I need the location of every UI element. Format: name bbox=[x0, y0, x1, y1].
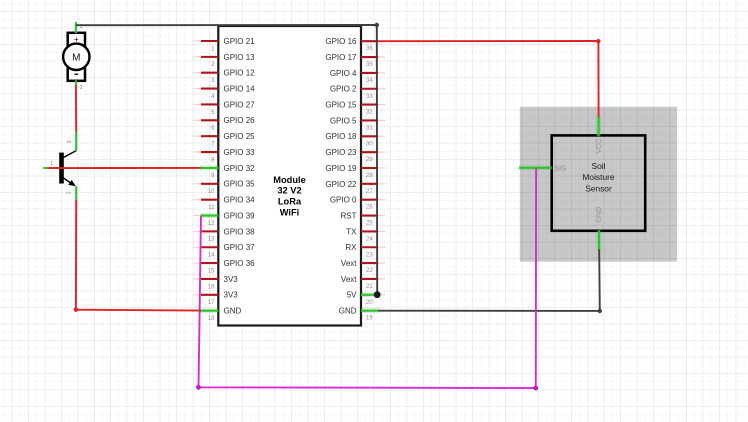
svg-text:1: 1 bbox=[50, 161, 53, 167]
svg-text:GPIO 21: GPIO 21 bbox=[224, 37, 256, 46]
svg-text:23: 23 bbox=[366, 252, 373, 258]
svg-text:GPIO 19: GPIO 19 bbox=[325, 164, 357, 173]
svg-text:GPIO 26: GPIO 26 bbox=[224, 116, 256, 125]
svg-text:2: 2 bbox=[80, 85, 83, 91]
svg-text:GPIO 4: GPIO 4 bbox=[330, 69, 357, 78]
svg-text:Vext: Vext bbox=[341, 259, 357, 268]
svg-text:36: 36 bbox=[366, 46, 373, 52]
svg-text:19: 19 bbox=[366, 316, 373, 322]
svg-text:30: 30 bbox=[366, 141, 373, 147]
svg-text:12: 12 bbox=[208, 221, 215, 227]
svg-text:35: 35 bbox=[366, 62, 373, 68]
svg-text:GPIO 37: GPIO 37 bbox=[224, 243, 256, 252]
svg-text:11: 11 bbox=[208, 205, 215, 211]
svg-text:25: 25 bbox=[366, 221, 373, 227]
svg-text:GPIO 5: GPIO 5 bbox=[330, 116, 357, 125]
svg-text:34: 34 bbox=[366, 78, 373, 84]
svg-text:GPIO 2: GPIO 2 bbox=[330, 85, 357, 94]
svg-text:GPIO 16: GPIO 16 bbox=[325, 37, 357, 46]
svg-text:GPIO 22: GPIO 22 bbox=[325, 180, 357, 189]
svg-text:GPIO 34: GPIO 34 bbox=[224, 196, 256, 205]
svg-text:31: 31 bbox=[366, 125, 373, 131]
svg-text:GPIO 0: GPIO 0 bbox=[330, 196, 357, 205]
svg-text:Module: Module bbox=[273, 175, 306, 185]
svg-text:GPIO 38: GPIO 38 bbox=[224, 227, 256, 236]
svg-text:SIG: SIG bbox=[555, 165, 567, 172]
svg-text:GPIO 18: GPIO 18 bbox=[325, 132, 357, 141]
svg-text:24: 24 bbox=[366, 236, 373, 242]
svg-text:22: 22 bbox=[366, 268, 373, 274]
svg-text:GPIO 32: GPIO 32 bbox=[224, 164, 256, 173]
svg-text:GND: GND bbox=[339, 307, 357, 316]
svg-text:33: 33 bbox=[366, 94, 373, 100]
svg-text:17: 17 bbox=[208, 300, 215, 306]
svg-text:VCC: VCC bbox=[596, 139, 603, 154]
svg-text:WiFi: WiFi bbox=[280, 207, 300, 217]
svg-text:GPIO 14: GPIO 14 bbox=[224, 85, 256, 94]
svg-text:RST: RST bbox=[341, 211, 357, 220]
svg-text:32: 32 bbox=[366, 110, 373, 116]
svg-text:Vext: Vext bbox=[341, 275, 357, 284]
svg-text:28: 28 bbox=[366, 173, 373, 179]
svg-text:Moisture: Moisture bbox=[582, 172, 614, 182]
svg-text:Sensor: Sensor bbox=[585, 183, 612, 193]
svg-text:GPIO 39: GPIO 39 bbox=[224, 211, 256, 220]
svg-text:15: 15 bbox=[208, 268, 215, 274]
svg-text:14: 14 bbox=[208, 253, 215, 259]
svg-text:RX: RX bbox=[345, 243, 357, 252]
svg-text:20: 20 bbox=[366, 300, 373, 306]
svg-text:GPIO 15: GPIO 15 bbox=[325, 101, 357, 110]
svg-text:32 V2: 32 V2 bbox=[277, 186, 301, 196]
svg-text:26: 26 bbox=[366, 205, 373, 211]
svg-text:21: 21 bbox=[366, 284, 373, 290]
svg-text:LoRa: LoRa bbox=[278, 197, 302, 207]
svg-text:10: 10 bbox=[208, 189, 215, 195]
svg-text:29: 29 bbox=[366, 157, 373, 163]
svg-text:GPIO 25: GPIO 25 bbox=[224, 132, 256, 141]
svg-text:5V: 5V bbox=[347, 291, 357, 300]
svg-text:27: 27 bbox=[366, 189, 373, 195]
svg-text:M: M bbox=[72, 52, 80, 63]
svg-text:3V3: 3V3 bbox=[224, 275, 239, 284]
svg-text:GPIO 13: GPIO 13 bbox=[224, 53, 256, 62]
svg-text:GPIO 12: GPIO 12 bbox=[224, 69, 256, 78]
svg-text:13: 13 bbox=[208, 237, 215, 243]
svg-text:GPIO 17: GPIO 17 bbox=[325, 53, 357, 62]
svg-text:3: 3 bbox=[67, 140, 73, 143]
svg-text:GPIO 27: GPIO 27 bbox=[224, 100, 256, 109]
svg-text:18: 18 bbox=[208, 316, 215, 322]
svg-text:GPIO 35: GPIO 35 bbox=[224, 180, 256, 189]
svg-text:2: 2 bbox=[67, 191, 73, 194]
svg-text:GPIO 36: GPIO 36 bbox=[224, 259, 256, 268]
svg-text:GPIO 33: GPIO 33 bbox=[224, 148, 256, 157]
svg-text:GND: GND bbox=[596, 207, 603, 223]
svg-text:Soil: Soil bbox=[592, 161, 606, 171]
svg-text:GND: GND bbox=[224, 307, 242, 316]
svg-text:16: 16 bbox=[208, 284, 215, 290]
svg-text:GPIO 23: GPIO 23 bbox=[325, 148, 357, 157]
svg-text:+: + bbox=[74, 35, 79, 44]
svg-text:TX: TX bbox=[346, 227, 357, 236]
svg-text:3V3: 3V3 bbox=[224, 291, 239, 300]
